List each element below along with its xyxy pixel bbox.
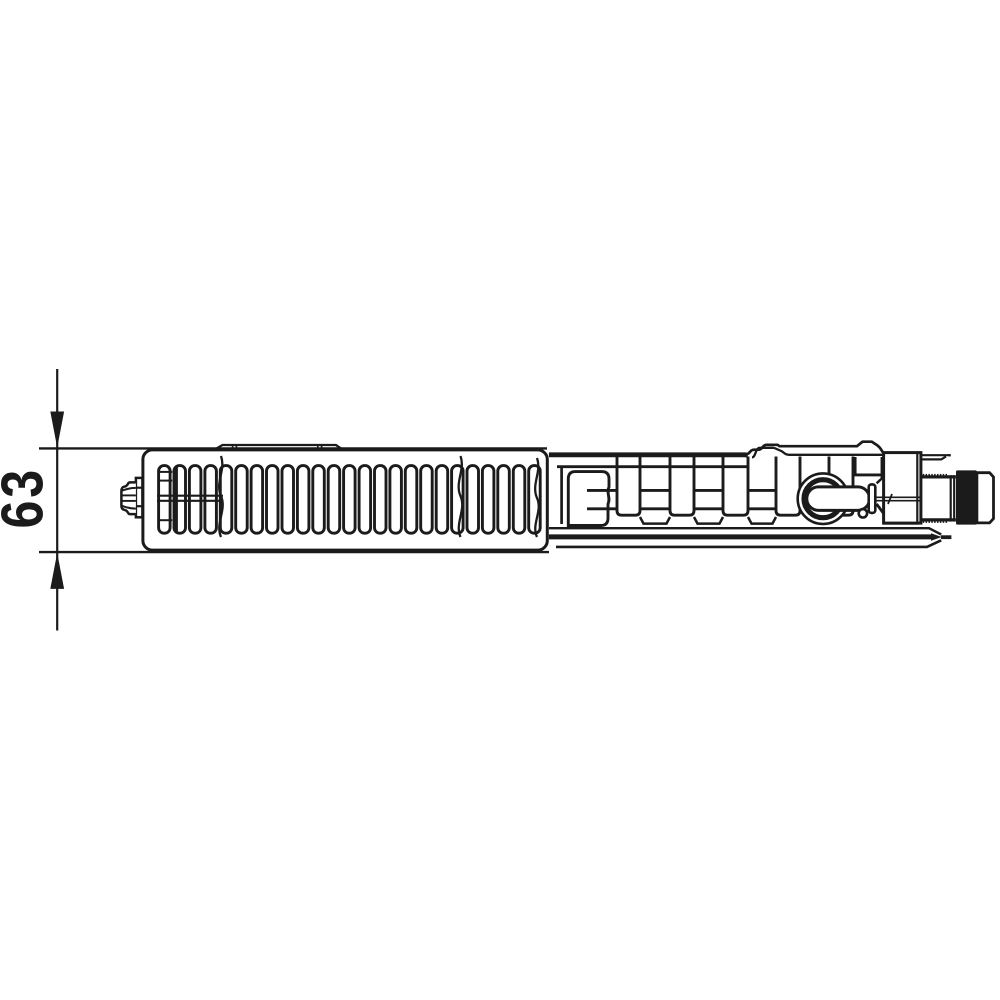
svg-text:63: 63 <box>0 467 55 528</box>
